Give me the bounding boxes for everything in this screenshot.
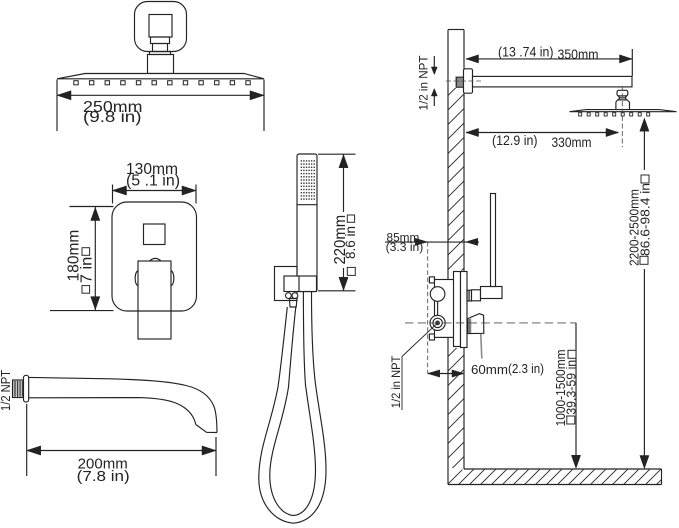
svg-text:1/2 in NPT: 1/2 in NPT [417,55,431,111]
svg-text:(7.8 in): (7.8 in) [77,469,130,485]
svg-text:60mm: 60mm [471,362,508,377]
svg-text:(2.3 in): (2.3 in) [508,361,544,376]
svg-text:330mm: 330mm [552,135,592,150]
svg-text:(3.3 in): (3.3 in) [386,240,424,254]
svg-text:1/2 NPT: 1/2 NPT [0,370,13,411]
svg-text:(5 .1 in): (5 .1 in) [126,173,180,190]
svg-text:(9.8 in): (9.8 in) [83,109,142,126]
svg-text:39.3-59 in: 39.3-59 in [565,360,579,415]
svg-text:7 in: 7 in [79,257,96,284]
svg-text:(12.9 in): (12.9 in) [492,133,538,148]
svg-text:1/2 in NPT: 1/2 in NPT [389,355,403,408]
svg-text:8.6 in: 8.6 in [342,226,358,259]
svg-text:350mm: 350mm [558,47,599,62]
svg-text:(13 .74 in): (13 .74 in) [498,45,554,60]
svg-text:86.6-98.4 in: 86.6-98.4 in [639,183,653,256]
